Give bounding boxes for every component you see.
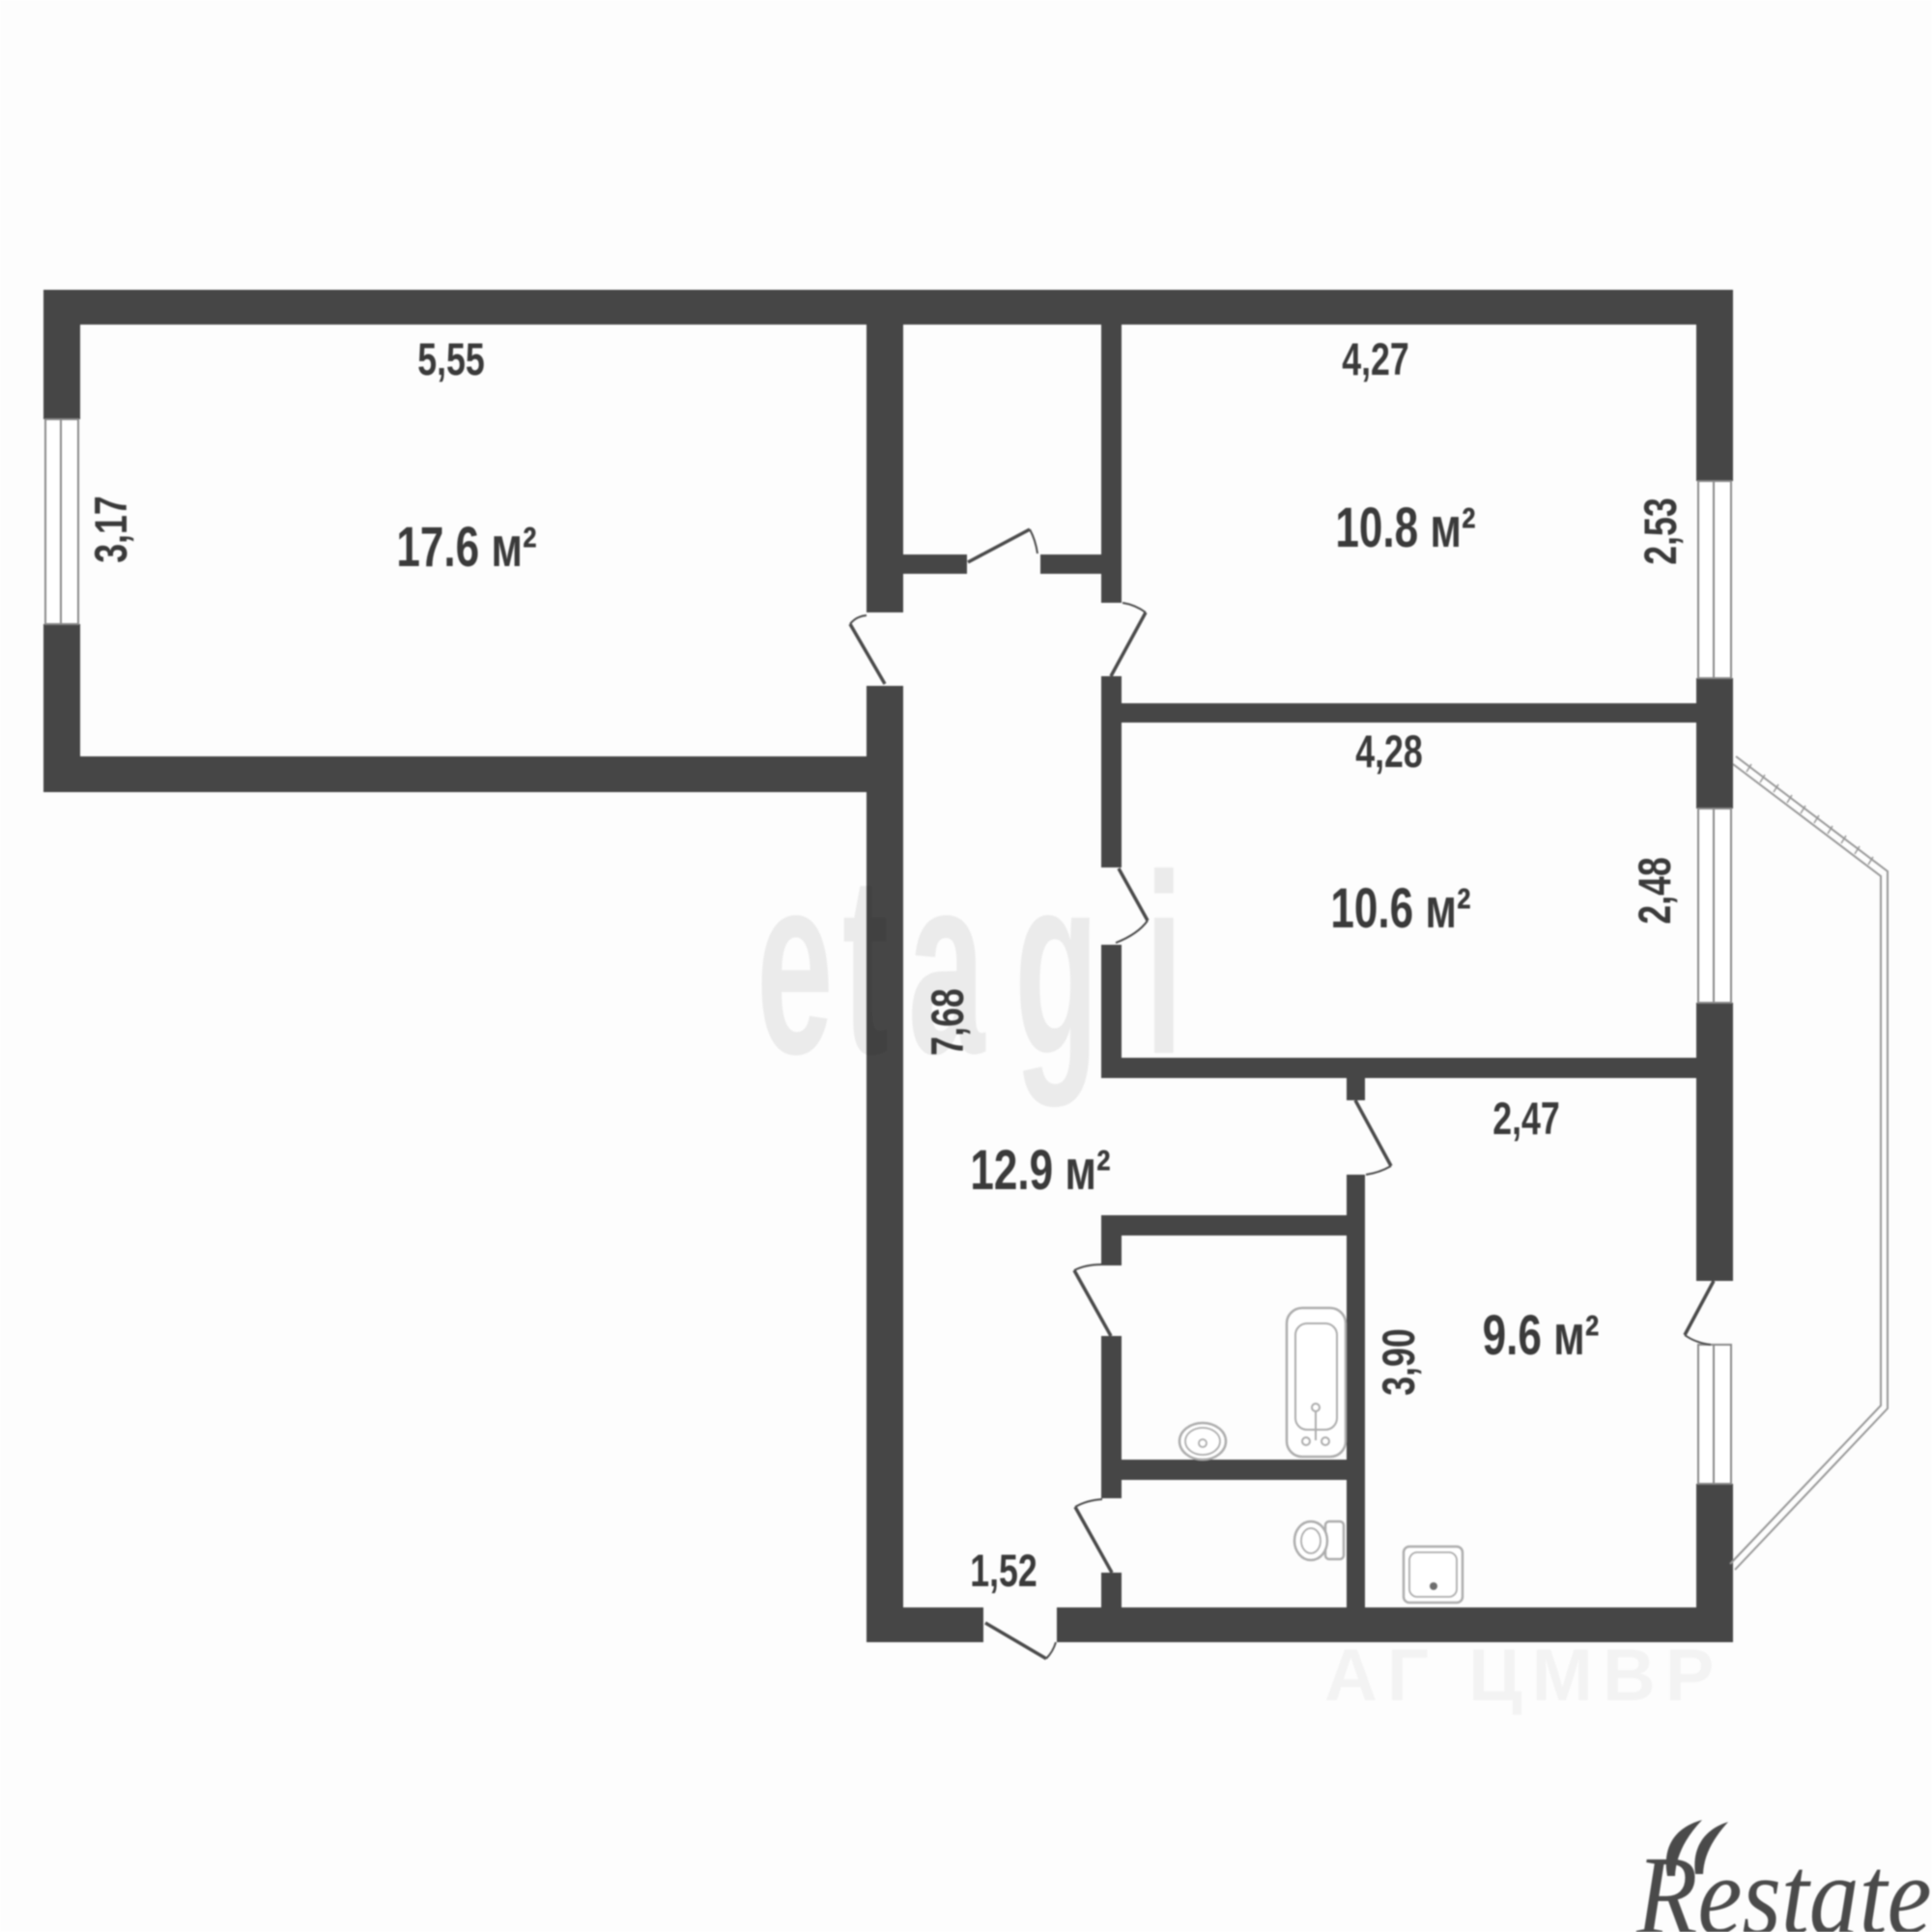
svg-text:2,47: 2,47 [1492, 1093, 1560, 1144]
svg-text:10.6 м²: 10.6 м² [1330, 876, 1470, 939]
svg-text:АГ ЦМВР: АГ ЦМВР [1324, 1634, 1723, 1717]
svg-text:4,28: 4,28 [1355, 725, 1423, 777]
svg-text:7,68: 7,68 [922, 988, 973, 1056]
svg-text:2,53: 2,53 [1634, 497, 1686, 565]
svg-text:3,17: 3,17 [85, 496, 136, 563]
svg-text:a: a [908, 822, 986, 1108]
svg-text:g: g [1014, 822, 1098, 1108]
svg-text:12.9 м²: 12.9 м² [970, 1138, 1110, 1201]
svg-text:10.8 м²: 10.8 м² [1335, 496, 1475, 558]
svg-text:2,48: 2,48 [1629, 857, 1680, 924]
svg-text:4,27: 4,27 [1342, 333, 1409, 384]
svg-text:9.6 м²: 9.6 м² [1483, 1303, 1600, 1366]
svg-text:17.6 м²: 17.6 м² [396, 515, 536, 578]
svg-text:i: i [1145, 822, 1183, 1108]
svg-text:5,55: 5,55 [417, 333, 485, 384]
svg-text:t: t [842, 822, 889, 1108]
svg-text:3,90: 3,90 [1373, 1328, 1424, 1396]
svg-text:e: e [756, 822, 834, 1108]
svg-text:1,52: 1,52 [970, 1545, 1037, 1596]
